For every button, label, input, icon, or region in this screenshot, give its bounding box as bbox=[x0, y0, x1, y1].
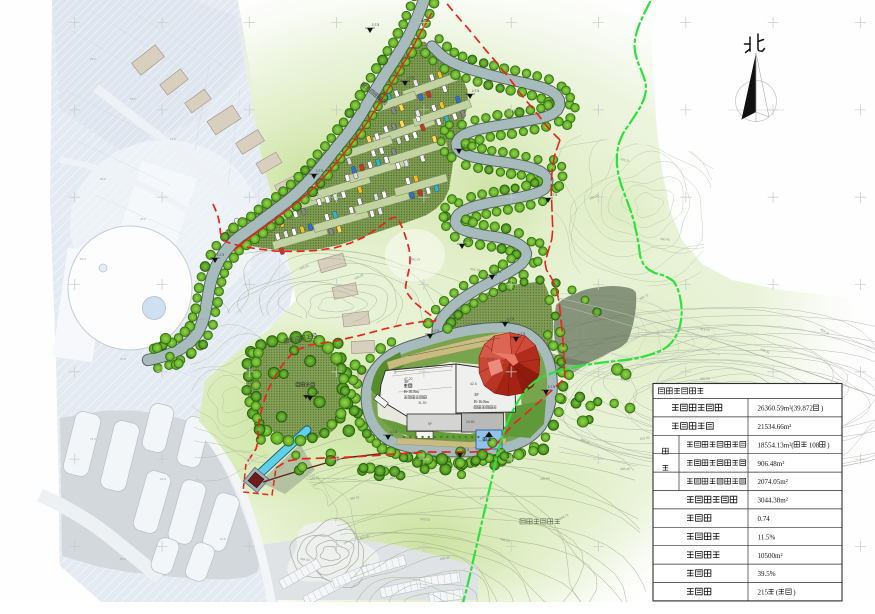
svg-text:78.0: 78.0 bbox=[140, 217, 146, 221]
svg-text:B-16.8m: B-16.8m bbox=[474, 399, 490, 404]
svg-text:1:7.5: 1:7.5 bbox=[464, 239, 471, 243]
svg-text:21534.66m²: 21534.66m² bbox=[758, 423, 792, 431]
svg-text:398.64: 398.64 bbox=[540, 476, 550, 481]
svg-text:396.53: 396.53 bbox=[700, 376, 710, 381]
svg-text:69.5: 69.5 bbox=[100, 177, 106, 181]
svg-text:61.0: 61.0 bbox=[80, 257, 86, 261]
svg-text:906.48m²: 906.48m² bbox=[758, 460, 785, 468]
svg-text:1:7.5: 1:7.5 bbox=[390, 430, 397, 434]
svg-text:0.74: 0.74 bbox=[758, 515, 771, 523]
svg-text:23.5: 23.5 bbox=[90, 57, 96, 61]
svg-text:53.5: 53.5 bbox=[130, 97, 136, 101]
svg-text:466.66: 466.66 bbox=[620, 467, 630, 471]
svg-text:B-16.8m: B-16.8m bbox=[404, 389, 420, 394]
svg-text:13.5: 13.5 bbox=[170, 137, 176, 141]
svg-text:1:7.5: 1:7.5 bbox=[316, 169, 323, 173]
svg-text:1:7.5: 1:7.5 bbox=[372, 23, 379, 27]
svg-text:15.80: 15.80 bbox=[466, 420, 475, 424]
svg-text:11.5%: 11.5% bbox=[758, 533, 776, 541]
svg-text:3F: 3F bbox=[404, 379, 409, 384]
svg-text:31.50: 31.50 bbox=[418, 401, 427, 405]
svg-text:87.9: 87.9 bbox=[200, 317, 206, 321]
svg-text:18554.13m²(: 18554.13m²( bbox=[758, 441, 795, 449]
svg-text:1:7.5: 1:7.5 bbox=[217, 253, 224, 257]
svg-text:108: 108 bbox=[809, 441, 820, 449]
svg-text:9F: 9F bbox=[428, 422, 432, 426]
svg-text:3044.38m²: 3044.38m² bbox=[758, 497, 788, 505]
svg-text:17.5: 17.5 bbox=[487, 357, 494, 361]
svg-text:390.14: 390.14 bbox=[410, 257, 420, 262]
svg-text:1:7.5: 1:7.5 bbox=[518, 332, 525, 336]
svg-text:1:7.5: 1:7.5 bbox=[494, 270, 501, 274]
svg-text:1:7.5: 1:7.5 bbox=[550, 193, 557, 197]
svg-text:61.6: 61.6 bbox=[220, 537, 226, 541]
svg-text:71.9: 71.9 bbox=[90, 437, 96, 441]
svg-text:10500m²: 10500m² bbox=[758, 552, 783, 560]
svg-text:26360.59m²(39.872: 26360.59m²(39.872 bbox=[758, 405, 814, 413]
svg-text:1:7.5: 1:7.5 bbox=[462, 448, 469, 452]
svg-text:1:7.5: 1:7.5 bbox=[472, 89, 479, 93]
svg-text:39.5%: 39.5% bbox=[758, 570, 776, 578]
svg-text:3F: 3F bbox=[474, 392, 479, 397]
svg-text:37.9: 37.9 bbox=[120, 357, 126, 361]
svg-text:42.6: 42.6 bbox=[470, 382, 477, 386]
svg-text:1:7.5: 1:7.5 bbox=[461, 144, 468, 148]
svg-text:388.12: 388.12 bbox=[520, 297, 530, 301]
svg-text:50.6: 50.6 bbox=[120, 557, 126, 561]
svg-text:1:7.5: 1:7.5 bbox=[507, 317, 514, 321]
svg-text:1:7.5: 1:7.5 bbox=[407, 76, 414, 80]
svg-text:62.9: 62.9 bbox=[160, 477, 166, 481]
svg-text:2074.05m²: 2074.05m² bbox=[758, 478, 788, 486]
svg-text:461.98: 461.98 bbox=[280, 417, 290, 421]
svg-text:1:7.5: 1:7.5 bbox=[432, 329, 439, 333]
svg-text:1:7.5: 1:7.5 bbox=[548, 385, 555, 389]
svg-text:460.42: 460.42 bbox=[660, 237, 670, 242]
svg-text:1:7.5: 1:7.5 bbox=[312, 391, 319, 395]
svg-text:215: 215 bbox=[758, 589, 769, 597]
